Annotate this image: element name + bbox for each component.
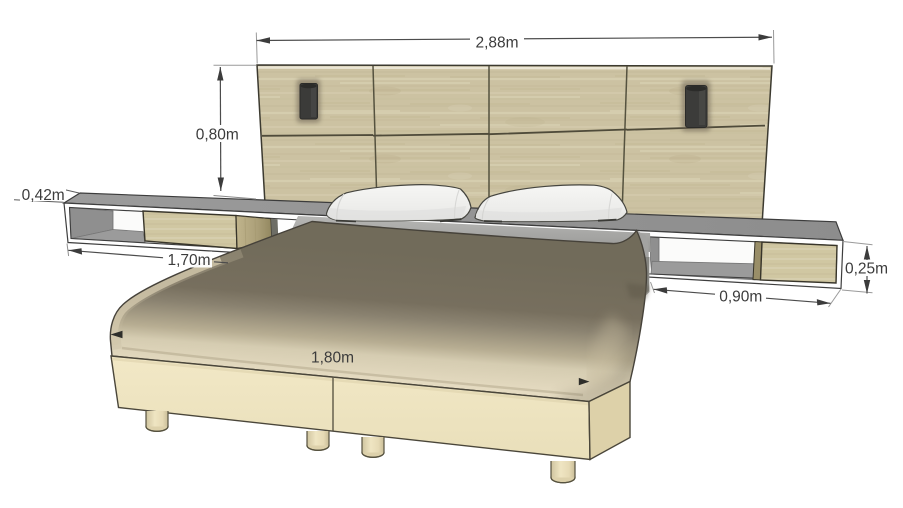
- svg-text:1,80m: 1,80m: [311, 350, 354, 367]
- svg-text:2,88m: 2,88m: [475, 35, 518, 52]
- svg-text:0,42m: 0,42m: [22, 187, 65, 204]
- svg-text:0,80m: 0,80m: [196, 127, 239, 144]
- svg-text:0,25m: 0,25m: [845, 261, 888, 278]
- svg-text:0,90m: 0,90m: [719, 288, 762, 305]
- svg-text:1,70m: 1,70m: [167, 252, 210, 269]
